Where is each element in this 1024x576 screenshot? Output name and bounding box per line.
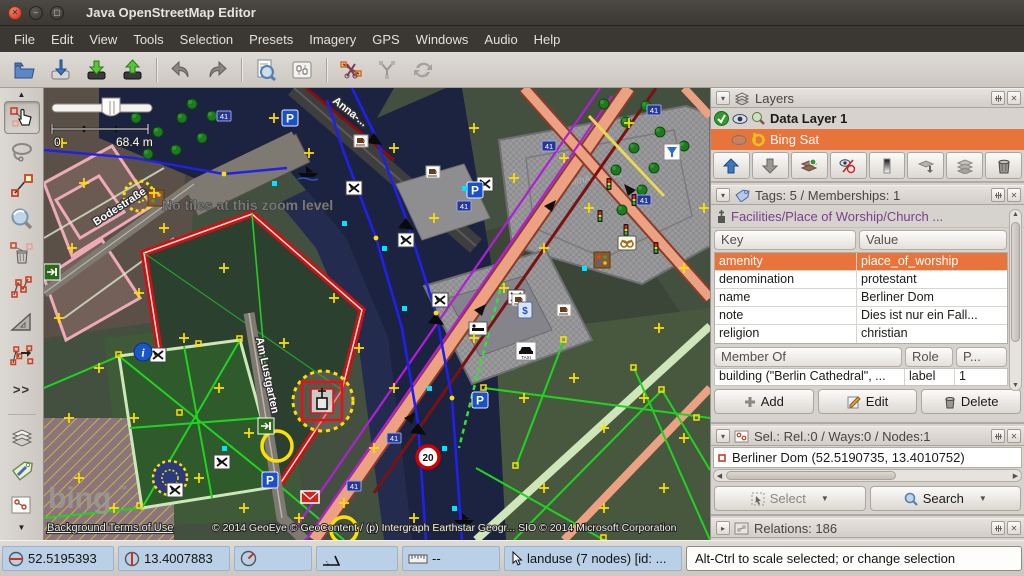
position-header[interactable]: P... xyxy=(956,347,1007,367)
menu-imagery[interactable]: Imagery xyxy=(301,29,364,50)
housenumber-badge xyxy=(637,195,651,205)
housenumber-badge xyxy=(387,433,401,443)
tag-table: amenityplace_of_worship denominationprot… xyxy=(714,252,1008,344)
lasso-tool-icon xyxy=(9,139,35,165)
hotel-icon xyxy=(469,322,487,335)
toolbar-separator xyxy=(326,58,327,82)
selection-list-icon xyxy=(9,492,35,518)
housenumber-badge xyxy=(347,481,361,491)
undo-icon xyxy=(169,58,193,82)
search-button-panel[interactable]: Search ▼ xyxy=(870,486,1022,511)
draw-node-tool-button[interactable] xyxy=(4,169,40,202)
menu-audio[interactable]: Audio xyxy=(476,29,525,50)
layers-icon xyxy=(9,424,35,450)
status-bar: 52.5195393 13.4007883 -- landuse (7 node… xyxy=(0,540,1024,576)
envelope-icon xyxy=(301,491,319,503)
selection-panel: ▾ Sel.: Rel.:0 / Ways:0 / Nodes:1 ✕ Berl… xyxy=(711,426,1024,516)
delete-tool-button[interactable] xyxy=(4,237,40,270)
housenumber-badge xyxy=(217,111,231,121)
more-tools-button[interactable]: >> xyxy=(4,373,40,406)
refresh-icon xyxy=(411,58,435,82)
layer-row-data[interactable]: Data Layer 1 xyxy=(711,108,1024,129)
redo-icon xyxy=(205,58,229,82)
heading-display xyxy=(234,546,312,571)
no-tiles-message: No tiles at this zoom level xyxy=(162,197,333,213)
selection-close-button[interactable]: ✕ xyxy=(1007,429,1021,443)
fastfood-icon xyxy=(664,144,680,160)
parallel-way-tool-button[interactable] xyxy=(4,339,40,372)
latitude-display: 52.5195393 xyxy=(2,546,114,571)
layers-panel-icon xyxy=(734,91,750,105)
select-tool-button[interactable] xyxy=(4,101,40,134)
relations-panel-icon xyxy=(734,522,749,535)
data-layer-icon xyxy=(751,111,766,126)
layer-buttons xyxy=(711,150,1024,181)
menu-edit[interactable]: Edit xyxy=(43,29,81,50)
open-file-button[interactable] xyxy=(6,55,42,85)
tags-dialog-toggle[interactable] xyxy=(4,454,40,487)
selection-panel-icon xyxy=(734,430,749,443)
title-bar: ✕ – ▢ Java OpenStreetMap Editor xyxy=(0,0,1024,26)
delete-tag-button[interactable]: Delete xyxy=(921,389,1021,414)
svg-text:$: $ xyxy=(522,306,528,317)
hidden-eye-icon[interactable] xyxy=(731,134,747,146)
relations-pin-button[interactable] xyxy=(991,521,1005,535)
coffee-icon xyxy=(426,166,440,178)
selection-dialog-toggle[interactable] xyxy=(4,488,40,521)
tools-scroll-up[interactable]: ▲ xyxy=(4,88,40,100)
zoom-tool-icon xyxy=(9,207,35,233)
scroll-up-arrow[interactable]: ▲ xyxy=(1010,211,1021,218)
scroll-down-arrow[interactable]: ▼ xyxy=(1010,382,1021,389)
tag-action-buttons: Add Edit Delete xyxy=(711,386,1024,417)
layer-merge-down-button[interactable] xyxy=(907,152,944,179)
church-preset-icon xyxy=(715,209,727,224)
tag-row[interactable]: denominationprotestant xyxy=(715,271,1007,289)
hovered-object-info: landuse (7 nodes) [id: ... xyxy=(504,546,682,571)
map-canvas[interactable]: P 41 xyxy=(44,88,710,540)
menu-gps[interactable]: GPS xyxy=(364,29,407,50)
angle-icon xyxy=(322,552,340,566)
merge-nodes-tool-icon xyxy=(9,275,35,301)
download-along-button[interactable] xyxy=(42,55,78,85)
atm-icon: $ xyxy=(518,302,532,318)
preferences-icon xyxy=(290,58,314,82)
add-tag-button[interactable]: Add xyxy=(714,389,814,414)
longitude-icon xyxy=(124,551,140,567)
open-folder-icon xyxy=(12,58,36,82)
layers-dialog-toggle[interactable] xyxy=(4,420,40,453)
tag-row[interactable]: noteDies ist nur ein Fall... xyxy=(715,307,1007,325)
longitude-display: 13.4007883 xyxy=(118,546,230,571)
download-data-icon xyxy=(48,58,72,82)
svg-text:0: 0 xyxy=(54,135,61,149)
node-icon xyxy=(717,453,727,463)
exit-icon xyxy=(258,418,274,434)
scroll-right-arrow[interactable]: ▶ xyxy=(1010,470,1021,481)
housenumber-badge xyxy=(542,141,556,151)
layer-move-down-button[interactable] xyxy=(752,152,789,179)
layers-panel: ▾ Layers ✕ Data Layer 1 Bing Sat xyxy=(711,88,1024,183)
coffee-icon xyxy=(354,135,368,147)
tags-panel-icon xyxy=(734,188,750,202)
restaurant-icon xyxy=(432,293,448,307)
housenumber-badge xyxy=(457,201,471,211)
upload-button[interactable] xyxy=(114,55,150,85)
tag-row[interactable]: religionchristian xyxy=(715,325,1007,343)
tag-row[interactable]: amenityplace_of_worship xyxy=(715,253,1007,271)
angle-display xyxy=(316,546,398,571)
housenumber-badge xyxy=(647,105,661,115)
visible-eye-icon[interactable] xyxy=(732,113,748,125)
layer-visibility-button[interactable] xyxy=(830,152,867,179)
menu-file[interactable]: File xyxy=(6,29,43,50)
layer-name: Bing Sat xyxy=(770,132,819,147)
imagery-copyright: © 2014 GeoEye © GeoContent / (p) Intergr… xyxy=(212,522,677,534)
parking-icon xyxy=(282,110,298,126)
layers-panel-title: Layers xyxy=(755,91,989,106)
menu-presets[interactable]: Presets xyxy=(241,29,301,50)
relations-panel: ▸ Relations: 186 ✕ xyxy=(711,518,1024,540)
svg-text:™: ™ xyxy=(118,484,127,494)
combine-way-button[interactable] xyxy=(369,55,405,85)
bing-logo: bing xyxy=(48,482,111,515)
search-doc-icon xyxy=(254,58,278,82)
key-column-header[interactable]: Key xyxy=(714,230,856,250)
parallel-way-tool-icon xyxy=(9,343,35,369)
tag-icon xyxy=(9,458,35,484)
scroll-left-arrow[interactable]: ◀ xyxy=(714,470,725,481)
trash-icon xyxy=(944,395,956,409)
search-dropdown-arrow[interactable]: ▼ xyxy=(979,494,987,503)
menu-tools[interactable]: Tools xyxy=(125,29,171,50)
edit-pencil-icon xyxy=(847,395,861,409)
parking-icon xyxy=(467,182,483,198)
delete-tool-icon xyxy=(9,241,35,267)
window-title: Java OpenStreetMap Editor xyxy=(86,5,256,20)
menu-help[interactable]: Help xyxy=(526,29,569,50)
svg-text:20: 20 xyxy=(422,453,434,464)
plus-icon xyxy=(744,396,756,408)
tags-vertical-scrollbar[interactable]: ▲ ▼ xyxy=(1009,209,1022,391)
member-of-header[interactable]: Member Of xyxy=(714,347,902,367)
relations-panel-title: Relations: 186 xyxy=(754,521,989,536)
menu-selection[interactable]: Selection xyxy=(172,29,241,50)
menu-bar: File Edit View Tools Selection Presets I… xyxy=(0,26,1024,52)
restaurant-icon xyxy=(150,348,166,362)
lasso-tool-button[interactable] xyxy=(4,135,40,168)
relations-close-button[interactable]: ✕ xyxy=(1007,521,1021,535)
redo-button[interactable] xyxy=(199,55,235,85)
cursor-icon xyxy=(510,551,523,566)
layer-activate-button[interactable] xyxy=(791,152,828,179)
extrude-tool-icon xyxy=(9,309,35,335)
exit-icon xyxy=(44,264,60,280)
toolbar-separator xyxy=(241,58,242,82)
josm-window: ✕ – ▢ Java OpenStreetMap Editor File Edi… xyxy=(0,0,1024,576)
right-dock: ▾ Layers ✕ Data Layer 1 Bing Sat xyxy=(710,88,1024,540)
split-way-icon xyxy=(339,58,363,82)
tag-column-headers: Key Value xyxy=(711,228,1010,252)
tags-panel: ▾ Tags: 5 / Memberships: 1 ✕ Facilities/… xyxy=(711,185,1024,424)
value-column-header[interactable]: Value xyxy=(859,230,1007,250)
upload-icon xyxy=(120,58,144,82)
extrude-tool-button[interactable] xyxy=(4,305,40,338)
tags-collapse-button[interactable]: ▾ xyxy=(716,188,730,202)
tag-row[interactable]: nameBerliner Dom xyxy=(715,289,1007,307)
window-close-button[interactable]: ✕ xyxy=(8,6,22,20)
bing-layer-icon xyxy=(751,132,766,147)
coffee-icon xyxy=(557,304,571,316)
tags-close-button[interactable]: ✕ xyxy=(1007,188,1021,202)
heading-icon xyxy=(240,550,257,567)
layers-pin-button[interactable] xyxy=(991,91,1005,105)
draw-node-tool-icon xyxy=(9,173,35,199)
zoom-tool-button[interactable] xyxy=(4,203,40,236)
restaurant-icon xyxy=(214,455,230,469)
window-minimize-button[interactable]: – xyxy=(29,6,43,20)
select-marquee-icon xyxy=(751,492,765,506)
ruler-icon xyxy=(408,553,428,564)
bakery-icon xyxy=(618,236,636,250)
search-button[interactable] xyxy=(248,55,284,85)
layer-opacity-button[interactable] xyxy=(869,152,906,179)
restaurant-icon xyxy=(398,233,414,247)
layer-duplicate-button[interactable] xyxy=(946,152,983,179)
select-button[interactable]: Select ▼ xyxy=(714,486,866,511)
layer-name: Data Layer 1 xyxy=(770,111,847,126)
info-icon: i xyxy=(134,343,152,361)
undo-button[interactable] xyxy=(163,55,199,85)
edit-toolbar: ▲ >> xyxy=(0,88,44,540)
status-help-text: Alt-Ctrl to scale selected; or change se… xyxy=(686,546,1022,571)
restaurant-icon xyxy=(346,181,362,195)
download-button[interactable] xyxy=(78,55,114,85)
edit-tag-button[interactable]: Edit xyxy=(818,389,918,414)
menu-windows[interactable]: Windows xyxy=(408,29,477,50)
layer-move-up-button[interactable] xyxy=(713,152,750,179)
relations-expand-button[interactable]: ▸ xyxy=(716,521,730,535)
active-check-icon xyxy=(714,111,729,126)
terms-of-use-link[interactable]: Background Terms of Use xyxy=(47,522,173,534)
menu-view[interactable]: View xyxy=(81,29,125,50)
search-icon xyxy=(904,492,918,506)
toolbar-separator xyxy=(156,58,157,82)
selection-horizontal-scrollbar[interactable]: ◀ ▶ xyxy=(713,469,1022,482)
preset-label: Facilities/Place of Worship/Church ... xyxy=(731,209,943,224)
layers-close-button[interactable]: ✕ xyxy=(1007,91,1021,105)
restaurant-icon xyxy=(167,483,183,497)
layer-row-bing[interactable]: Bing Sat xyxy=(711,129,1024,150)
selection-panel-title: Sel.: Rel.:0 / Ways:0 / Nodes:1 xyxy=(754,429,989,444)
tools-separator xyxy=(8,414,36,415)
taxi-icon: TAXI xyxy=(516,342,536,360)
berliner-dom-node[interactable] xyxy=(293,371,353,431)
distance-display: -- xyxy=(402,546,500,571)
svg-text:TAXI: TAXI xyxy=(521,355,531,360)
window-maximize-button[interactable]: ▢ xyxy=(50,6,64,20)
layers-collapse-button[interactable]: ▾ xyxy=(716,91,730,105)
parking-icon xyxy=(472,392,488,408)
parking-icon xyxy=(262,472,278,488)
preferences-button[interactable] xyxy=(284,55,320,85)
selection-buttons: Select ▼ Search ▼ xyxy=(711,483,1024,514)
marketplace-icon xyxy=(594,252,610,268)
split-way-button[interactable] xyxy=(333,55,369,85)
layer-delete-button[interactable] xyxy=(985,152,1022,179)
refresh-button[interactable] xyxy=(405,55,441,85)
role-header[interactable]: Role xyxy=(905,347,953,367)
membership-row[interactable]: building ("Berlin Cathedral", ... label … xyxy=(714,368,1008,386)
speed-limit-sign: 20 xyxy=(417,446,439,468)
merge-nodes-tool-button[interactable] xyxy=(4,271,40,304)
latitude-icon xyxy=(8,551,24,567)
selection-collapse-button[interactable]: ▾ xyxy=(716,429,730,443)
church-icon xyxy=(317,388,327,409)
main-toolbar xyxy=(0,52,1024,88)
selection-list-item[interactable]: Berliner Dom (52.5190735, 13.4010752) xyxy=(713,447,1022,468)
tags-panel-title: Tags: 5 / Memberships: 1 xyxy=(755,188,989,203)
membership-headers: Member Of Role P... xyxy=(711,344,1010,368)
select-tool-icon xyxy=(9,105,35,131)
svg-text:68.4 m: 68.4 m xyxy=(116,135,153,149)
tools-scroll-down[interactable]: ▼ xyxy=(4,521,40,533)
selection-pin-button[interactable] xyxy=(991,429,1005,443)
download-icon xyxy=(84,58,108,82)
select-dropdown-arrow[interactable]: ▼ xyxy=(821,494,829,503)
tags-pin-button[interactable] xyxy=(991,188,1005,202)
preset-row[interactable]: Facilities/Place of Worship/Church ... xyxy=(711,205,1024,228)
combine-way-icon xyxy=(375,58,399,82)
